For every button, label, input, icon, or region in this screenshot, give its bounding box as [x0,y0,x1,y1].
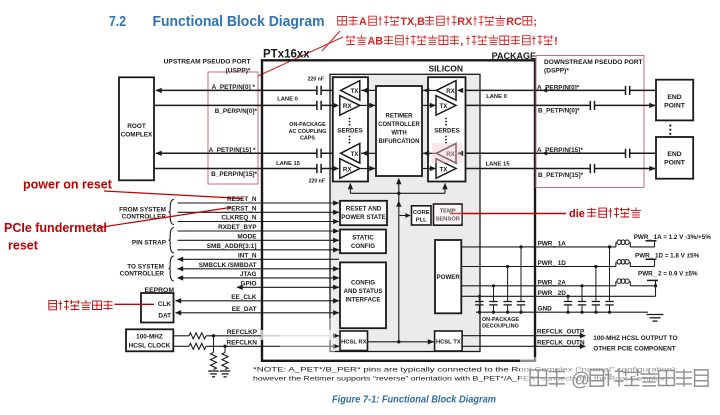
svg-text:CONFIG: CONFIG [351,280,375,287]
svg-text:PACKAGE: PACKAGE [492,51,536,61]
svg-text:220 nF: 220 nF [308,77,324,83]
svg-text:TO SYSTEM: TO SYSTEM [127,264,164,271]
svg-text:,: , [460,36,463,48]
svg-text:DECOUPLING: DECOUPLING [482,324,519,330]
svg-text:ON-PACKAGE: ON-PACKAGE [482,317,520,323]
svg-text:B_PETP/N[15]*: B_PETP/N[15]* [538,172,584,179]
svg-text:B_PERP/N[15]*: B_PERP/N[15]* [211,171,257,178]
svg-text:FROM SYSTEM: FROM SYSTEM [119,207,166,214]
svg-text:!: ! [554,36,558,48]
svg-text:A_PERP/N[15]*: A_PERP/N[15]* [537,147,583,154]
svg-text:CONTROLLER: CONTROLLER [378,122,420,128]
svg-text:PWR_ 1A: PWR_ 1A [538,240,567,247]
svg-text:CAPS: CAPS [300,136,315,142]
svg-text:PWR_ 1A = 1.2 V -3%/+5%: PWR_ 1A = 1.2 V -3%/+5% [634,234,712,241]
svg-text:A_PETP/N[0] *: A_PETP/N[0] * [212,84,256,91]
svg-text:RX: RX [446,88,455,95]
svg-text:Figure 7-1: Functional Block D: Figure 7-1: Functional Block Diagram [332,394,496,406]
svg-text:LANE 0: LANE 0 [277,97,298,103]
svg-text:POWER STATE: POWER STATE [341,214,385,221]
svg-text:;: ; [533,16,537,28]
svg-text:EE_DAT: EE_DAT [232,306,257,313]
svg-text:RC: RC [506,16,522,28]
svg-text:SILICON: SILICON [429,64,463,74]
svg-text:TX: TX [351,88,360,95]
svg-text:RETIMER: RETIMER [386,114,414,120]
svg-text:DOWNSTREAM PSEUDO PORT: DOWNSTREAM PSEUDO PORT [544,59,643,66]
svg-text:B_PERP/N[0]*: B_PERP/N[0]* [215,108,258,115]
svg-text:WITH: WITH [391,131,406,137]
svg-text:INT_N: INT_N [238,253,257,260]
svg-text:MODE: MODE [237,234,257,241]
svg-text:(DSPP)*: (DSPP)* [544,67,569,74]
svg-text:power on reset: power on reset [23,178,113,192]
svg-text:END: END [667,94,681,101]
svg-text:CONTROLLER: CONTROLLER [120,271,165,278]
svg-text:DAT: DAT [158,312,171,319]
svg-text:TX: TX [440,166,449,173]
svg-text:POWER: POWER [437,274,461,281]
svg-text:LANE 0: LANE 0 [486,94,507,100]
svg-text:REFCLK_OUTN: REFCLK_OUTN [537,340,585,347]
svg-text:100-MHZ HCSL OUTPUT TO: 100-MHZ HCSL OUTPUT TO [593,335,677,342]
svg-text:RESET AND: RESET AND [346,206,382,213]
svg-text:GPIO: GPIO [241,281,257,288]
svg-text:TX: TX [440,103,449,110]
svg-text:STATIC: STATIC [352,235,374,242]
svg-text:RESET_N: RESET_N [227,196,257,203]
svg-text:TX,B: TX,B [400,16,425,28]
svg-text:AB: AB [367,36,383,48]
svg-text:220 nF: 220 nF [309,179,325,185]
svg-text:100-MHZ: 100-MHZ [136,334,163,341]
svg-text:PWR_ 1D = 1.8 V ±5%: PWR_ 1D = 1.8 V ±5% [635,253,700,260]
svg-text:(USPP)*: (USPP)* [226,67,251,74]
svg-text:die: die [569,208,585,220]
svg-text:RX: RX [343,166,352,173]
svg-text:SERDES: SERDES [337,128,362,135]
svg-text:OTHER PCIE COMPONENT: OTHER PCIE COMPONENT [593,345,675,352]
svg-text:PWR_ 2A: PWR_ 2A [538,279,567,286]
svg-text:7.2: 7.2 [109,13,126,30]
svg-text:CLKREQ_N: CLKREQ_N [221,215,257,222]
svg-text:POINT: POINT [664,103,686,110]
svg-text:TX: TX [351,151,360,158]
svg-text:PTx16xx: PTx16xx [263,49,310,61]
svg-text:JTAG: JTAG [240,271,257,278]
svg-text:UPSTREAM PSEUDO PORT: UPSTREAM PSEUDO PORT [164,59,251,66]
svg-text:GND: GND [538,306,553,313]
svg-text:A_PETP/N[15] *: A_PETP/N[15] * [209,147,256,154]
svg-text:CORE: CORE [413,210,430,216]
svg-text:HCSL CLOCK: HCSL CLOCK [129,342,171,349]
svg-text:@: @ [571,370,590,391]
svg-text:LANE 15: LANE 15 [276,161,301,167]
svg-text:PERST_N: PERST_N [227,206,257,213]
svg-text:PWR_ 2D: PWR_ 2D [538,290,567,297]
svg-text:AC COUPLING: AC COUPLING [289,129,327,135]
svg-text:reset: reset [8,239,39,253]
svg-text:SMBCLK /SMBDAT: SMBCLK /SMBDAT [199,262,257,269]
svg-text:SMB_ADDR[3:1]: SMB_ADDR[3:1] [207,243,257,250]
svg-text:END: END [667,151,681,158]
svg-text:RX: RX [343,103,352,110]
svg-text:EE_CLK: EE_CLK [231,294,257,301]
svg-text:REFCLKN: REFCLKN [226,340,257,347]
svg-text:BIFURCATION: BIFURCATION [379,139,420,145]
svg-text:EEPROM: EEPROM [145,287,175,294]
svg-text:PWR_ 1D: PWR_ 1D [538,260,567,267]
svg-text:A_PERP/N[0]*: A_PERP/N[0]* [537,84,580,91]
svg-text:A: A [359,16,367,28]
svg-text:LANE 15: LANE 15 [486,162,511,168]
svg-text:ROOT: ROOT [127,123,146,130]
svg-text:RXDET_BYP: RXDET_BYP [218,224,257,231]
svg-text:REFCLKP: REFCLKP [227,329,258,336]
svg-text:REFCLK_OUTP: REFCLK_OUTP [537,329,585,336]
svg-text:ON-PACKAGE: ON-PACKAGE [289,122,326,128]
svg-text:CONFIG: CONFIG [351,243,375,250]
svg-text:PIN STRAP: PIN STRAP [132,239,167,246]
svg-text:PCIe fundermetal: PCIe fundermetal [4,221,107,235]
svg-text:COMPLEX: COMPLEX [121,132,153,139]
svg-text:CLK: CLK [158,301,172,308]
svg-text:SERDES: SERDES [434,128,459,135]
svg-text:Functional Block Diagram: Functional Block Diagram [153,13,325,30]
svg-text:INTERFACE: INTERFACE [345,297,380,304]
svg-text:RX: RX [457,16,473,28]
svg-text:HCSL TX: HCSL TX [436,339,461,345]
svg-text:AND STATUS: AND STATUS [344,288,383,295]
svg-text:PWR_ 2 = 0.9 V ±5%: PWR_ 2 = 0.9 V ±5% [638,271,698,278]
svg-text:B_PETP/N[0]*: B_PETP/N[0]* [538,107,580,114]
svg-text:HCSL RX: HCSL RX [341,339,366,345]
svg-text:POINT: POINT [664,160,686,167]
svg-text:CONTROLLER: CONTROLLER [122,214,167,221]
svg-text:PLL: PLL [416,218,427,224]
